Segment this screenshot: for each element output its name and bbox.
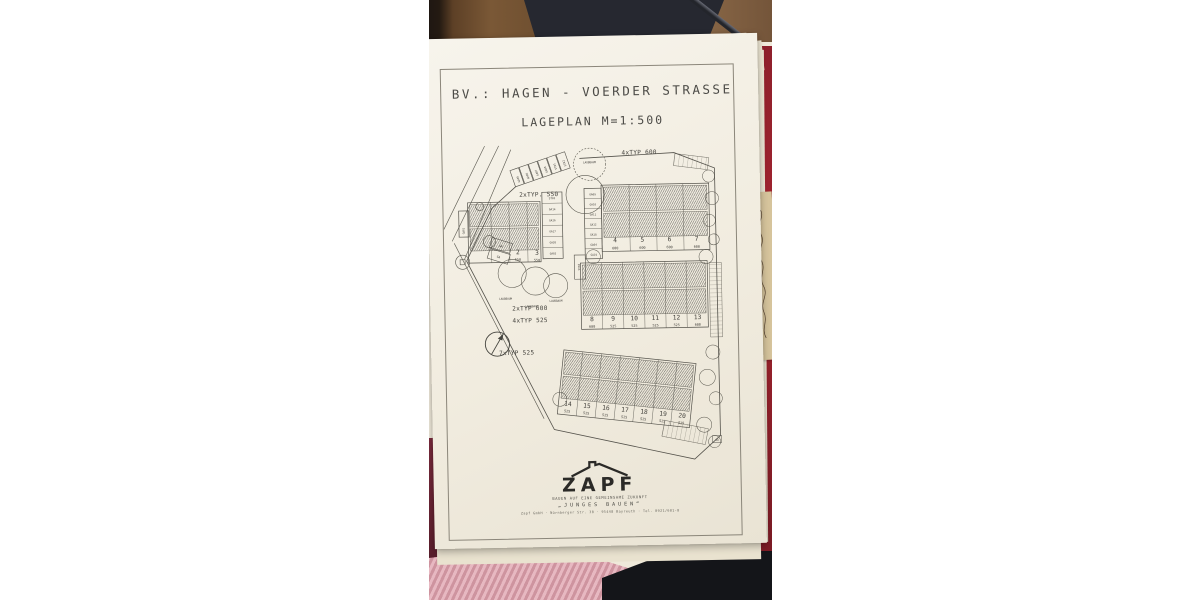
- house-number: 5: [640, 237, 644, 244]
- building-mid: ST04 8 9 10 11 12 13 600 525 525 525: [574, 253, 708, 330]
- house-size: 600: [695, 323, 701, 327]
- house-number: 15: [583, 403, 591, 411]
- street-lines: [442, 145, 544, 420]
- site-plan-sheet: BV.: HAGEN - VOERDER STRASSE LAGEPLAN M=…: [429, 33, 767, 549]
- house-size: 600: [612, 246, 618, 250]
- house-number: 19: [659, 410, 667, 418]
- garage-label: GA17: [549, 229, 556, 233]
- house-number: 20: [678, 412, 686, 420]
- garage-label: GA02: [461, 227, 465, 234]
- garage-row-diagonal: GA05 GA06 GA07 GA08 ST01 ST02: [510, 152, 570, 187]
- house-size: 600: [694, 245, 700, 249]
- garage-label: GA04: [590, 243, 597, 247]
- house-size: 525: [583, 411, 590, 416]
- tree-label: LAUBBAUM: [583, 160, 596, 164]
- house-number: 14: [564, 401, 572, 409]
- house-number: 17: [621, 406, 629, 414]
- garage-label: GA03: [550, 251, 557, 255]
- garage-label: GA12: [590, 222, 597, 226]
- house-size: 550: [534, 258, 540, 262]
- garage-label: GA07: [534, 169, 540, 177]
- house-number: 2: [516, 249, 520, 256]
- garage-label: GA14: [549, 207, 556, 211]
- garage-label: GA05: [515, 175, 521, 183]
- garage-label: ST02: [561, 159, 567, 167]
- house-number: 18: [640, 408, 648, 416]
- house-size: 525: [652, 323, 658, 327]
- house-size: 525: [610, 324, 616, 328]
- house-number: 6: [668, 236, 672, 243]
- house-size: 600: [589, 325, 595, 329]
- building-typ550: GA02 ST03 GA14 GA16 GA17 GA20 GA03 2 3 5…: [458, 192, 563, 264]
- house-number: 7: [695, 236, 699, 243]
- garage-label: ST03: [549, 196, 556, 200]
- garage-label: GA08: [543, 166, 549, 174]
- garage-label: GA18: [590, 233, 597, 237]
- house-number: 11: [652, 315, 660, 322]
- house-size: 525: [602, 413, 609, 418]
- typ-label-mid1: 2xTYP 600: [512, 305, 548, 313]
- house-number: 12: [673, 314, 681, 321]
- house-size: 525: [631, 324, 637, 328]
- garage-label: GA06: [524, 172, 530, 180]
- house-size: 525: [674, 323, 680, 327]
- garage-label: GA10: [590, 202, 597, 206]
- tree-label: LAUBBAUM: [499, 297, 512, 301]
- house-size: 525: [564, 409, 571, 414]
- house-number: 10: [630, 315, 638, 322]
- house-number: 16: [602, 404, 610, 412]
- house-size: 600: [639, 246, 645, 250]
- photo-of-site-plan: BV.: HAGEN - VOERDER STRASSE LAGEPLAN M=…: [429, 0, 772, 600]
- garage-label: GA20: [550, 240, 557, 244]
- tree-label: LAUBBAUM: [549, 299, 562, 303]
- laubbaum-trees-bottom: [498, 258, 568, 299]
- house-number: 3: [535, 250, 539, 257]
- site-plan: GA05 GA06 GA07 GA08 ST01 ST02 LAUBBAUM 4…: [440, 135, 748, 477]
- house-size: 600: [667, 245, 673, 249]
- zapf-logo-block: ZAPF BAUEN AUF EINE GEMEINSAME ZUKUNFT „…: [433, 457, 766, 517]
- building-typ525-bottom: 14 15 16 17 18 19 20 525 525 525 525 525…: [557, 350, 696, 428]
- typ-label-top: 4xTYP 600: [621, 149, 657, 157]
- garage-label: GA19: [591, 253, 598, 257]
- parking-row-bottom: [662, 420, 709, 444]
- house-number: 9: [611, 316, 615, 323]
- garage-label: GA11: [590, 212, 597, 216]
- corner-garage-label: GA: [715, 438, 719, 442]
- garage-label: ST01: [552, 162, 558, 170]
- house-number: 13: [694, 314, 702, 321]
- house-number: 4: [613, 237, 617, 244]
- garage-label: GA09: [589, 192, 596, 196]
- typ-label-mid2: 4xTYP 525: [512, 317, 548, 325]
- parking-row-top: [673, 154, 708, 170]
- building-typ600-top: GA09 GA10 GA11 GA12 GA18 GA04 GA19 4 5 6…: [584, 183, 710, 259]
- house-size: 525: [640, 417, 647, 422]
- house-number: 8: [590, 316, 594, 323]
- garage-label: GA: [496, 255, 501, 260]
- house-size: 525: [621, 415, 628, 420]
- garage-label: GA16: [549, 218, 556, 222]
- typ-label-bottom: 7xTYP 525: [499, 349, 535, 357]
- parking-row-right: [709, 262, 722, 337]
